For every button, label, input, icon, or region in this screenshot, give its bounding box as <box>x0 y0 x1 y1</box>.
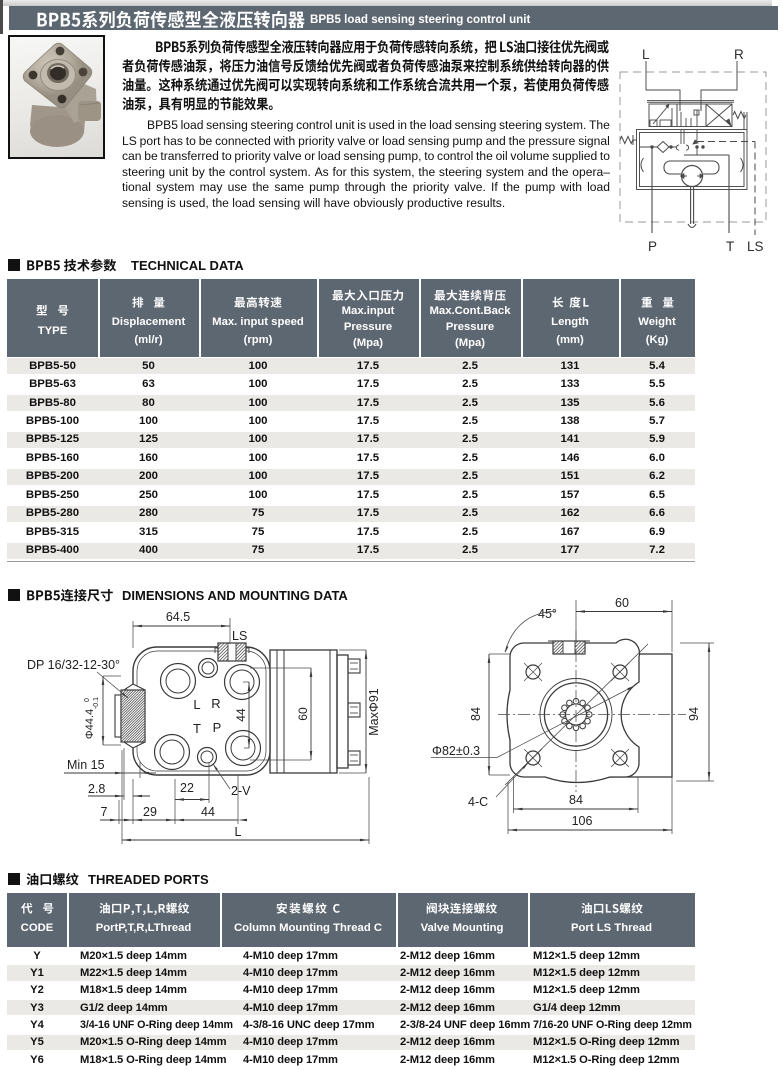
svg-text:-0.1: -0.1 <box>93 697 100 709</box>
svg-text:MaxΦ91: MaxΦ91 <box>367 688 381 736</box>
svg-text:4-C: 4-C <box>468 795 488 809</box>
svg-text:60: 60 <box>615 596 629 610</box>
svg-text:P: P <box>213 720 222 735</box>
svg-text:Φ44.4: Φ44.4 <box>84 709 96 739</box>
svg-text:DP 16/32-12-30°: DP 16/32-12-30° <box>27 658 120 672</box>
svg-text:L: L <box>235 825 242 839</box>
svg-text:64.5: 64.5 <box>166 610 190 624</box>
svg-text:R: R <box>734 47 744 62</box>
svg-text:T: T <box>193 721 201 736</box>
svg-text:84: 84 <box>569 793 583 807</box>
svg-text:P: P <box>648 239 657 254</box>
svg-text:0: 0 <box>84 698 91 702</box>
svg-text:84: 84 <box>469 707 483 721</box>
svg-text:2-V: 2-V <box>231 784 251 798</box>
svg-text:R: R <box>211 696 220 711</box>
svg-text:94: 94 <box>687 707 701 721</box>
svg-text:Φ82±0.3: Φ82±0.3 <box>432 744 480 758</box>
svg-text:T: T <box>726 239 734 254</box>
svg-text:L: L <box>642 47 650 62</box>
svg-text:22: 22 <box>180 781 194 795</box>
svg-text:LS: LS <box>232 629 247 643</box>
svg-text:44: 44 <box>201 805 215 819</box>
svg-text:Min 15: Min 15 <box>67 758 105 772</box>
svg-text:106: 106 <box>572 814 593 828</box>
svg-text:2.8: 2.8 <box>88 782 105 796</box>
svg-text:L: L <box>193 697 200 712</box>
svg-text:7: 7 <box>101 805 108 819</box>
svg-text:45°: 45° <box>538 607 557 621</box>
svg-text:LS: LS <box>747 239 764 254</box>
svg-text:29: 29 <box>143 805 157 819</box>
svg-text:60: 60 <box>296 707 310 721</box>
svg-text:44: 44 <box>234 708 248 722</box>
